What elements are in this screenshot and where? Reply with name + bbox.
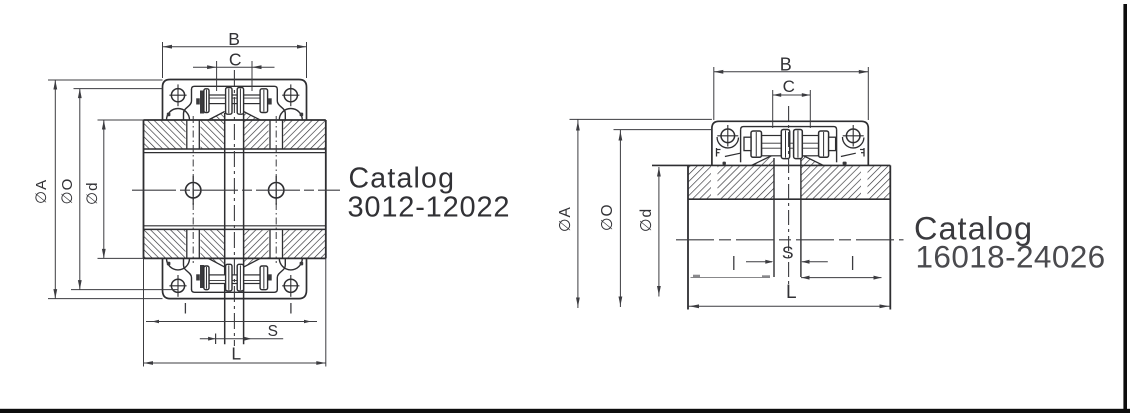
svg-text:L: L (786, 282, 797, 303)
svg-text:∅A: ∅A (33, 179, 50, 204)
svg-text:S: S (782, 243, 794, 263)
svg-text:∅d: ∅d (638, 208, 655, 232)
svg-text:∅O: ∅O (59, 178, 76, 205)
svg-text:16018-24026: 16018-24026 (916, 239, 1106, 275)
svg-text:B: B (780, 54, 793, 74)
svg-text:3012-12022: 3012-12022 (348, 192, 511, 224)
svg-text:∅d: ∅d (84, 182, 101, 205)
svg-text:∅O: ∅O (599, 203, 616, 231)
svg-text:Catalog: Catalog (349, 163, 456, 195)
svg-text:S: S (268, 323, 279, 340)
svg-text:∅A: ∅A (557, 206, 574, 232)
svg-text:C: C (783, 77, 796, 96)
svg-text:L: L (231, 344, 241, 364)
svg-text:C: C (229, 49, 242, 69)
svg-text:B: B (228, 29, 240, 49)
